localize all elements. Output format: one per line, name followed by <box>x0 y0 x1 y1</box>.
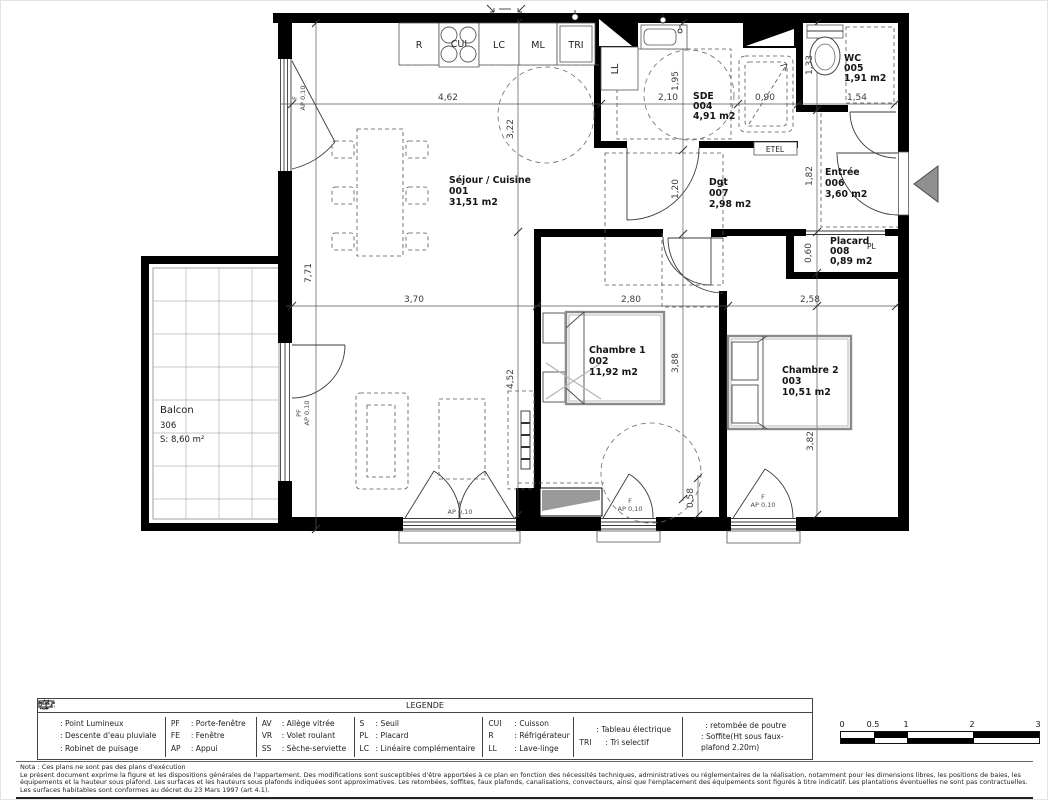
dim-sejour-h: 7,71 <box>304 263 314 283</box>
legend-item: LC: Linéaire complémentaire <box>360 743 478 756</box>
window-ch2-ap-label: AP 0,10 <box>751 501 776 509</box>
legend-title: LEGENDE <box>38 699 812 713</box>
sejour-num: 001 <box>449 186 468 197</box>
soffit-sde <box>743 23 796 48</box>
electrical-panel: ETEL <box>754 142 797 155</box>
legend-item: S: Seuil <box>360 718 478 731</box>
chambre1-name: Chambre 1 <box>589 345 646 356</box>
legend-item: R: Réfrigérateur <box>488 730 568 743</box>
scale-tick-label: 2 <box>969 720 974 729</box>
dim-win-offset: 0,58 <box>686 488 696 508</box>
legend-item: TRI: Tri selectif <box>579 737 677 750</box>
dim-wc-d: 1,33 <box>805 55 815 75</box>
scale-tick-label: 0.5 <box>867 720 880 729</box>
legend-item: PL: Placard <box>360 730 478 743</box>
sofa <box>356 393 408 489</box>
sejour-name: Séjour / Cuisine <box>449 175 531 186</box>
entrance-arrow <box>914 166 938 202</box>
chambre2-area: 10,51 m2 <box>782 387 831 398</box>
floor-plan-page: Balcon 306 S: 8,60 m² <box>0 0 1048 800</box>
dishwasher-label: ML <box>531 40 545 51</box>
dgt-num: 007 <box>709 188 728 199</box>
door-chambre1 <box>663 237 711 285</box>
dim-ch2-h: 3,82 <box>806 431 816 451</box>
dining-table <box>332 129 428 256</box>
washer-closet: LL <box>601 47 638 90</box>
dim-ch1-w: 2,80 <box>621 295 641 305</box>
legend-item: PF: Porte-fenêtre <box>171 718 251 731</box>
dimension-labels: 4,62 2,10 0,90 1,54 3,70 2,80 2,58 7,71 … <box>304 55 867 508</box>
rainwater-pipe-icon <box>572 10 578 20</box>
dim-ch2-w: 2,58 <box>800 295 820 305</box>
scale-tick-label: 0 <box>839 720 844 729</box>
dim-sejour-bottom-w: 3,70 <box>404 295 424 305</box>
legend-item: : Robinet de puisage <box>43 743 160 756</box>
entree-area: 3,60 m2 <box>825 189 867 200</box>
cooktop-label: CUI <box>451 39 467 50</box>
dim-entree-d: 1,82 <box>805 166 815 186</box>
sejour-area: 31,51 m2 <box>449 197 498 208</box>
radiator <box>521 411 530 469</box>
note-line: Nota : Ces plans ne sont pas des plans d… <box>20 764 1029 772</box>
dim-kitchen-d: 3,22 <box>506 119 516 139</box>
notes-block: Nota : Ces plans ne sont pas des plans d… <box>16 761 1033 799</box>
legend-col-openings: PF: Porte-fenêtre FE: Fenêtre AP: Appui <box>166 718 256 756</box>
legend-item: : Tableau électrique <box>579 724 677 737</box>
balcony-door-pf-label: PF <box>295 409 303 417</box>
soffit-window-pier <box>540 488 602 516</box>
legend-item: AV: Allège vitrée <box>262 718 349 731</box>
legend-item: CUI: Cuisson <box>488 718 568 731</box>
note-line: équipements et la hauteur sous plafond. … <box>20 779 1029 787</box>
window-ch1-ap-label: AP 0,10 <box>618 505 643 513</box>
legend-item: AP: Appui <box>171 743 251 756</box>
legend-item: : retombée de poutre <box>688 720 807 733</box>
legend-item: FE: Fenêtre <box>171 730 251 743</box>
entrance-door <box>837 152 909 215</box>
dgt-name: Dgt <box>709 177 728 188</box>
dim-sde-d: 1,95 <box>671 71 681 91</box>
chambre1-area: 11,92 m2 <box>589 367 638 378</box>
dim-sejour-top-w: 4,62 <box>438 93 458 103</box>
sde-area: 4,91 m2 <box>693 111 735 122</box>
wc-area: 1,91 m2 <box>844 73 886 84</box>
balcony-door: PF AP 0,10 <box>281 343 346 481</box>
fridge-label: R <box>416 40 423 51</box>
entree-name: Entrée <box>825 167 860 178</box>
tri-label: TRI <box>567 40 583 51</box>
coffee-table <box>439 399 485 479</box>
dim-shower-w: 0,90 <box>755 93 775 103</box>
balcony: Balcon 306 S: 8,60 m² <box>141 256 287 531</box>
dim-dgt-d: 1,20 <box>671 179 681 199</box>
legend-col-misc: S: Seuil PL: Placard LC: Linéaire complé… <box>355 718 483 756</box>
dashed-beam-lines <box>399 27 898 483</box>
balcony-door-ap-label: AP 0,10 <box>303 401 311 426</box>
legend-col-symbols: : Point Lumineux : Descente d'eau pluvia… <box>38 718 165 756</box>
vent-marks <box>487 5 525 12</box>
note-line: Les surfaces habitables sont conformes a… <box>20 787 1029 795</box>
balcon-num: 306 <box>160 421 176 431</box>
washer-label: LL <box>610 63 621 74</box>
legend-col-ceiling: : retombée de poutre : Soffite(Ht sous f… <box>683 720 812 754</box>
lc-label: LC <box>493 40 505 51</box>
window-chambre2-bottom: F AP 0,10 <box>727 469 800 543</box>
sde-sink <box>641 25 687 49</box>
chambre2-name: Chambre 2 <box>782 365 839 376</box>
legend-col-glazing: AV: Allège vitrée VR: Volet roulant SS: … <box>257 718 354 756</box>
legend-col-kitchen: CUI: Cuisson R: Réfrigérateur LL: Lave-l… <box>483 718 573 756</box>
window-chambre1-bottom: F AP 0,10 <box>597 474 660 542</box>
legend-item: VR: Volet roulant <box>262 730 349 743</box>
window-sejour-bottom: F AP 0,10 <box>399 471 520 543</box>
entree-num: 006 <box>825 178 844 189</box>
chambre1-num: 002 <box>589 356 608 367</box>
window-left-f-label: F <box>291 96 299 100</box>
window-ch2-f-label: F <box>761 493 765 501</box>
scale-tick-label: 3 <box>1035 720 1040 729</box>
electrical-panel-label: ETEL <box>766 145 785 154</box>
walls <box>273 13 909 531</box>
dim-sejour-lower-h: 4,52 <box>506 369 516 389</box>
window-sejour-f-label: F <box>458 500 462 508</box>
legend-item: LL: Lave-linge <box>488 743 568 756</box>
window-sejour-left: F AP 0,10 <box>281 59 336 171</box>
soffit-kitchen <box>597 17 638 48</box>
note-line: Le présent document exprime la figure et… <box>20 772 1029 780</box>
window-ch1-f-label: F <box>628 497 632 505</box>
legend-col-electric: : Tableau électrique TRI: Tri selectif <box>574 724 682 749</box>
placard-pl-label: PL <box>867 242 877 251</box>
dim-wc-w: 1,54 <box>847 93 867 103</box>
placard-area: 0,89 m2 <box>830 256 872 267</box>
legend-box: LEGENDE : Point Lumineux : Descente d'ea… <box>37 698 813 760</box>
scale-tick-label: 1 <box>903 720 908 729</box>
scale-bar-graphic <box>840 731 1040 744</box>
dim-placard-d: 0,60 <box>804 243 814 263</box>
legend-item: : Point Lumineux <box>43 718 160 731</box>
window-left-ap-label: AP 0,10 <box>299 86 307 111</box>
floor-plan-svg: Balcon 306 S: 8,60 m² <box>1 1 1048 695</box>
dim-sde-w: 2,10 <box>658 93 678 103</box>
balcony-tile-grid <box>153 268 279 519</box>
legend-item: SS: Sèche-serviette <box>262 743 349 756</box>
chambre2-num: 003 <box>782 376 801 387</box>
scale-bar: 0 0.5 1 2 3 <box>840 720 1040 746</box>
door-wc <box>850 112 896 158</box>
dgt-area: 2,98 m2 <box>709 199 751 210</box>
balcon-area: S: 8,60 m² <box>160 435 204 445</box>
legend-item: : Descente d'eau pluviale <box>43 730 160 743</box>
legend-item: : Soffite(Ht sous faux-plafond 2.20m) <box>688 732 807 753</box>
balcon-name: Balcon <box>160 405 194 416</box>
dim-ch1-h: 3,88 <box>671 353 681 373</box>
window-sejour-ap-label: AP 0,10 <box>448 508 473 516</box>
door-sde <box>627 148 699 220</box>
